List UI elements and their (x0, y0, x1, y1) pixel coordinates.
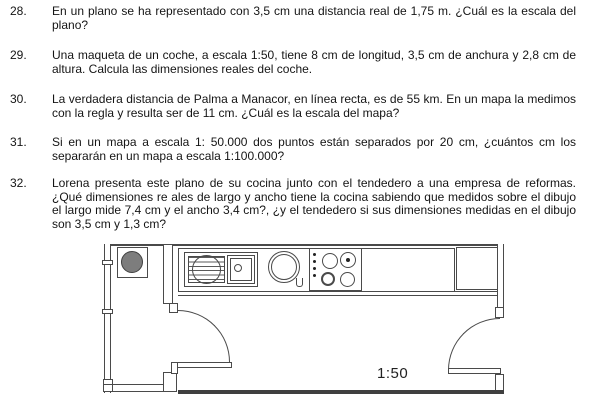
partition-wall (163, 244, 173, 304)
right-door-swing-arc (448, 318, 500, 370)
problem-32: 32. Lorena presenta este plano de su coc… (10, 177, 596, 231)
problem-text: La verdadera distancia de Palma a Manaco… (52, 93, 576, 120)
refrigerator (456, 247, 501, 290)
counter-front-edge (178, 291, 503, 296)
left-window-wall (104, 244, 111, 393)
worksheet-page: { "problems": [ {"number": "28.", "text"… (0, 0, 600, 407)
hob-knob-dot (313, 267, 316, 270)
problem-28: 28. En un plano se ha representado con 3… (10, 5, 596, 32)
bottom-wall (178, 390, 504, 394)
round-sink-inner (271, 254, 297, 280)
right-door-leaf (448, 368, 501, 374)
faucet-mark (296, 278, 303, 287)
burner-center-dot (346, 258, 350, 262)
burner (340, 272, 355, 287)
sink-drainer-circle (192, 255, 221, 284)
kitchen-floor-plan: 1:50 (100, 243, 506, 401)
hob-knob-dot (313, 274, 316, 277)
hob-knob-dot (313, 253, 316, 256)
problem-number: 30. (10, 93, 44, 107)
problem-number: 32. (10, 177, 44, 191)
problem-number: 31. (10, 136, 44, 150)
partition-wall-lower (163, 372, 177, 392)
problem-number: 29. (10, 49, 44, 63)
washing-machine-drum (121, 251, 143, 273)
problem-number: 28. (10, 5, 44, 19)
problem-text: Lorena presenta este plano de su cocina … (52, 177, 576, 231)
burner (321, 272, 335, 286)
problem-text: En un plano se ha representado con 3,5 c… (52, 5, 576, 32)
problem-30: 30. La verdadera distancia de Palma a Ma… (10, 93, 596, 120)
problem-29: 29. Una maqueta de un coche, a escala 1:… (10, 49, 596, 76)
left-door-swing-arc (178, 310, 230, 362)
door-jamb (169, 303, 178, 313)
hob-knob-dot (313, 260, 316, 263)
window-mullion (102, 309, 113, 314)
door-jamb (495, 307, 504, 318)
window-mullion (102, 260, 113, 265)
problem-text: Si en un mapa a escala 1: 50.000 dos pun… (52, 136, 576, 163)
right-wall (497, 244, 504, 308)
right-wall-lower (495, 374, 504, 391)
tendedero-bottom-wall (104, 384, 166, 392)
sink-drain (234, 264, 242, 272)
burner (322, 253, 338, 269)
left-door-leaf (177, 362, 232, 368)
problem-31: 31. Si en un mapa a escala 1: 50.000 dos… (10, 136, 596, 163)
scale-label: 1:50 (377, 365, 408, 382)
problem-text: Una maqueta de un coche, a escala 1:50, … (52, 49, 576, 76)
